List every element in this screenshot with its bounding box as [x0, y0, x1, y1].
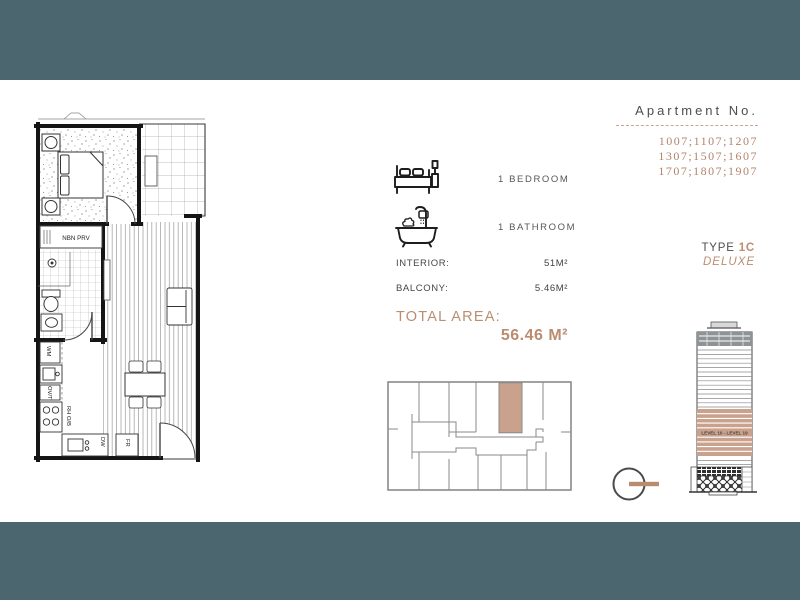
balcony-value: 5.46M²: [535, 283, 568, 294]
oven-tower-label: OV/T: [46, 386, 52, 400]
nbn-prv-label: NBN PRV: [62, 235, 90, 242]
sofa: [167, 288, 192, 325]
bed-icon: [392, 156, 440, 203]
type-variant: DELUXE: [701, 256, 755, 268]
type-code: 1C: [739, 242, 755, 254]
fridge-label: FR: [124, 439, 130, 447]
apartment-numbers-line2: 1307;1507;1607: [616, 149, 758, 164]
bedroom-count-label: 1 BEDROOM: [498, 174, 569, 185]
living-timber-floor: [103, 222, 198, 458]
dishwasher-label: DW: [99, 437, 105, 447]
balcony-planter: [145, 156, 157, 186]
apartment-numbers: 1007;1107;1207 1307;1507;1607 1707;1807;…: [616, 134, 758, 179]
apartment-numbers-line3: 1707;1807;1907: [616, 164, 758, 179]
apartment-no-title: Apartment No.: [616, 103, 758, 118]
bottom-teal-band: [0, 522, 800, 600]
floor-key-plan: [386, 380, 574, 498]
interior-row: INTERIOR: 51M²: [396, 258, 568, 269]
bathroom-count-label: 1 BATHROOM: [498, 222, 576, 233]
apartment-brochure-page: NBN PRV: [0, 0, 800, 600]
level-range-label: LEVEL 10 - LEVEL 19: [701, 431, 748, 436]
balcony-row: BALCONY: 5.46M²: [396, 283, 568, 294]
type-label: TYPE: [701, 242, 734, 254]
floorplan-drawing: NBN PRV: [28, 110, 213, 472]
apartment-number-block: Apartment No. 1007;1107;1207 1307;1507;1…: [616, 103, 758, 179]
interior-label: INTERIOR:: [396, 258, 449, 269]
nbn-closet: NBN PRV: [40, 226, 102, 248]
washing-machine-label: WM: [45, 346, 51, 356]
title-underline: [616, 125, 758, 126]
apartment-numbers-line1: 1007;1107;1207: [616, 134, 758, 149]
area-stats: INTERIOR: 51M² BALCONY: 5.46M²: [396, 258, 568, 308]
floorplan: NBN PRV: [28, 110, 213, 477]
unit-type-block: TYPE 1C DELUXE: [701, 242, 755, 268]
balcony-label: BALCONY:: [396, 283, 448, 294]
tv-unit: [104, 260, 110, 300]
north-indicator-icon: [609, 463, 673, 512]
total-area-value: 56.46 M²: [396, 327, 568, 345]
top-teal-band: [0, 0, 800, 80]
highlighted-unit: [499, 383, 522, 433]
total-area-label: TOTAL AREA:: [396, 309, 501, 325]
building-elevation: LEVEL 10 - LEVEL 19: [687, 314, 759, 503]
bathtub-icon: [392, 202, 440, 253]
rangehood-oven-bench-label: RH O/B: [65, 406, 71, 426]
interior-value: 51M²: [544, 258, 568, 269]
